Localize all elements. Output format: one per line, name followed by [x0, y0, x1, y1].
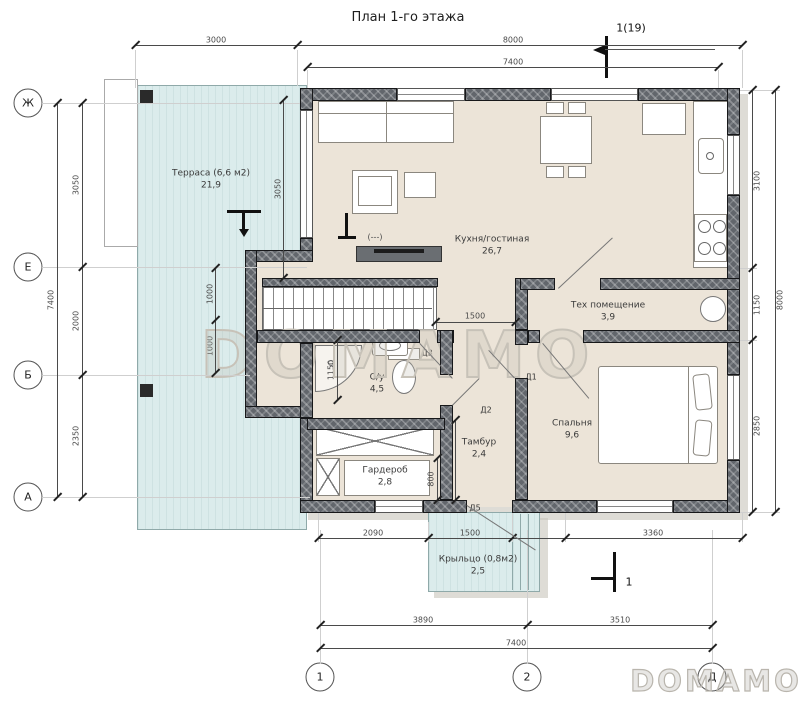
wall-segment: [727, 460, 740, 513]
extension-line: [307, 70, 308, 88]
room-area: 2,8: [362, 477, 407, 489]
window: [551, 88, 638, 101]
room-area: 2,4: [462, 449, 496, 461]
dim-bottom-1500: 1500: [460, 529, 480, 538]
room-level-mark-bar: [338, 236, 356, 239]
extension-line: [527, 530, 528, 664]
chair: [546, 166, 564, 178]
sofa-cushion-line: [386, 101, 387, 143]
chair: [546, 102, 564, 114]
room-name: Тех помещение: [571, 300, 645, 312]
grid-row-zh: Ж: [14, 89, 43, 118]
room-label-terrace: Терраса (6,6 м2) 21,9: [172, 168, 250, 191]
bed-headboard-line: [688, 366, 689, 464]
porch-step-line: [520, 514, 521, 590]
chair: [568, 166, 586, 178]
dimension-line: [320, 625, 712, 626]
terrace-post: [140, 384, 153, 397]
stove-burner: [713, 242, 726, 255]
section-arrow-tail: [605, 49, 715, 50]
section-cut-line-bottom: [613, 552, 616, 592]
grid-row-e: Е: [14, 253, 43, 282]
dim-top-3000: 3000: [206, 36, 226, 45]
pillow: [692, 373, 713, 411]
wardrobe-shelving: [316, 458, 340, 496]
dim-bottom-3890: 3890: [413, 616, 433, 625]
dimension-line: [307, 67, 718, 68]
wall-segment: [300, 88, 313, 110]
dimension-line: [320, 648, 712, 649]
grid-col-2: 2: [513, 663, 542, 692]
section-label-top: 1(19): [616, 22, 646, 35]
dim-right-2850: 2850: [753, 416, 762, 436]
fridge: [642, 103, 686, 135]
room-label-bedroom: Спальня 9,6: [552, 418, 592, 441]
room-label-wardrobe: Гардероб 2,8: [362, 465, 407, 488]
room-label-vestibule: Тамбур 2,4: [462, 437, 496, 460]
dim-left-3050: 3050: [72, 175, 81, 195]
dimension-line: [775, 90, 776, 512]
wall-segment: [423, 500, 467, 513]
wall-segment: [515, 378, 528, 500]
wall-segment: [300, 500, 375, 513]
dimension-line: [752, 90, 753, 512]
dimension-line: [135, 45, 742, 46]
dimension-line: [437, 458, 438, 500]
tv-screen: [374, 249, 424, 253]
window: [300, 110, 313, 238]
room-area: 21,9: [172, 180, 250, 192]
chair: [568, 102, 586, 114]
extension-line: [135, 50, 136, 88]
room-name: Кухня/гостиная: [455, 234, 529, 246]
dim-bottom-7400: 7400: [506, 639, 526, 648]
floor-plan-drawing: План 1-го этажа: [0, 0, 800, 701]
dim-right-8000: 8000: [776, 290, 785, 310]
room-name: Крыльцо (0,8м2): [439, 554, 518, 566]
dim-int-1000b: 1000: [206, 336, 215, 356]
wardrobe-shelving: [316, 426, 434, 456]
room-area: 9,6: [552, 430, 592, 442]
dimension-line: [435, 322, 515, 323]
dining-table: [540, 116, 592, 164]
room-area: 4,5: [370, 384, 385, 396]
extension-line: [742, 50, 743, 88]
wall-segment: [520, 278, 555, 290]
wall-segment: [638, 88, 740, 101]
window: [727, 375, 740, 460]
extension-line: [718, 70, 719, 88]
extension-line: [320, 530, 321, 664]
armchair-seat: [358, 176, 392, 206]
wall-segment: [600, 278, 740, 290]
dim-int-1500: 1500: [465, 312, 485, 321]
wall-segment: [465, 88, 551, 101]
grid-line: [42, 375, 250, 376]
terrace-level-arrow: [239, 229, 249, 237]
wall-segment: [262, 278, 438, 287]
level-mark-text: (---): [368, 233, 383, 242]
porch-deck: [428, 512, 540, 592]
dim-left-7400: 7400: [47, 290, 56, 310]
section-arrow-bar-bottom: [591, 577, 615, 580]
wall-segment: [727, 88, 740, 135]
wall-segment: [307, 418, 445, 430]
wall-segment: [528, 330, 540, 343]
room-label-porch: Крыльцо (0,8м2) 2,5: [439, 554, 518, 577]
section-cut-line-top: [605, 36, 608, 78]
dim-left-2000: 2000: [72, 311, 81, 331]
extension-line: [712, 530, 713, 664]
dim-left-2350: 2350: [72, 426, 81, 446]
section-arrow-top: [593, 45, 605, 55]
dim-right-3100: 3100: [753, 171, 762, 191]
room-name: Спальня: [552, 418, 592, 430]
extension-line: [297, 50, 298, 86]
boiler: [700, 296, 726, 322]
page-title: План 1-го этажа: [352, 10, 465, 25]
grid-col-1: 1: [306, 663, 335, 692]
stove-burner: [698, 220, 711, 233]
window: [597, 500, 673, 513]
room-name: Гардероб: [362, 465, 407, 477]
stove-burner: [713, 220, 726, 233]
window: [375, 500, 423, 513]
stove-burner: [698, 242, 711, 255]
wall-segment: [300, 343, 313, 418]
dim-top-7400: 7400: [503, 58, 523, 67]
dim-int-1000a: 1000: [206, 284, 215, 304]
terrace-level-mark-stem: [242, 213, 245, 229]
dim-int-800: 800: [427, 471, 436, 486]
dim-int-1150: 1150: [327, 360, 336, 380]
room-area: 3,9: [571, 312, 645, 324]
room-area: 2,5: [439, 566, 518, 578]
dimension-line: [82, 103, 83, 497]
dim-top-8000: 8000: [503, 36, 523, 45]
dimension-line: [455, 420, 456, 500]
pillow: [692, 419, 712, 456]
door-label-d2: Д2: [480, 406, 491, 415]
wall-segment: [300, 88, 397, 101]
room-name: С/у: [370, 372, 385, 384]
wall-segment: [245, 250, 257, 418]
sink-drain: [706, 152, 714, 160]
porch-step-line: [528, 514, 529, 590]
window: [397, 88, 465, 101]
dimension-line: [57, 103, 58, 497]
dimension-line: [337, 340, 338, 400]
dim-bottom-3510: 3510: [610, 616, 630, 625]
wall-segment: [515, 330, 528, 345]
room-area: 26,7: [455, 246, 529, 258]
coffee-table: [404, 172, 436, 198]
dimension-line: [318, 538, 742, 539]
dim-int-3050: 3050: [274, 179, 283, 199]
toilet-bowl: [392, 360, 416, 394]
dim-right-1150: 1150: [753, 295, 762, 315]
dim-bottom-3360: 3360: [643, 529, 663, 538]
room-label-bathroom: С/у 4,5: [370, 372, 385, 395]
section-label-bottom: 1: [626, 576, 633, 589]
dimension-line: [283, 100, 284, 278]
grid-row-b: Б: [14, 361, 43, 390]
grid-row-a: А: [14, 483, 43, 512]
stair-direction-line: [262, 308, 432, 309]
terrace-post: [140, 90, 153, 103]
room-name: Терраса (6,6 м2): [172, 168, 250, 180]
wall-segment: [512, 500, 597, 513]
wall-segment: [583, 330, 740, 343]
room-label-kitchen-living: Кухня/гостиная 26,7: [455, 234, 529, 257]
grid-col-d: Д: [698, 663, 727, 692]
room-label-tech: Тех помещение 3,9: [571, 300, 645, 323]
window: [727, 135, 740, 195]
dim-bottom-2090: 2090: [363, 529, 383, 538]
terrace-edge-frame: [104, 79, 138, 247]
room-name: Тамбур: [462, 437, 496, 449]
